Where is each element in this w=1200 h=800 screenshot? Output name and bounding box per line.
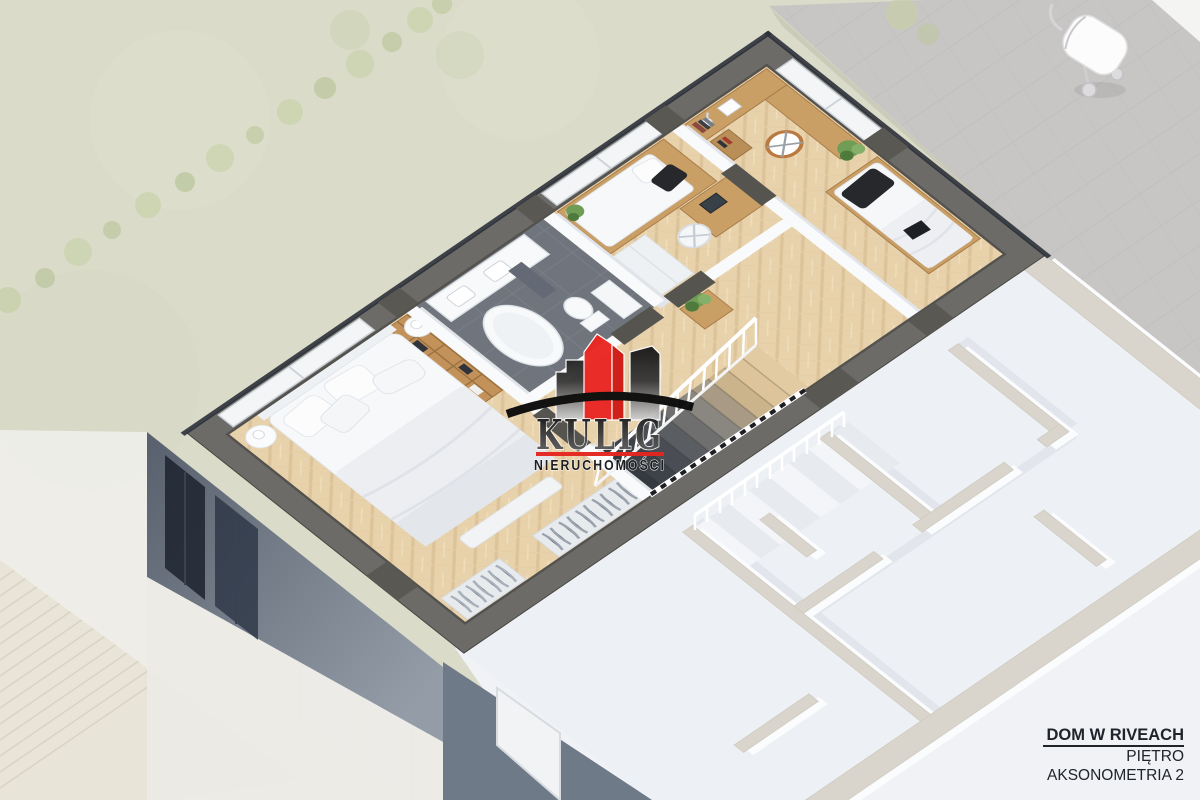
caption-floor: PIĘTRO: [1126, 748, 1184, 765]
caption-underline: [1043, 745, 1184, 747]
caption-project: DOM W RIVEACH: [1047, 726, 1185, 744]
floorplan-render: KULIG NIERUCHOMOŚCI DOM W RIVEACH PIĘTRO…: [0, 0, 1200, 800]
brand-subtitle: NIERUCHOMOŚCI: [534, 456, 666, 474]
caption-view: AKSONOMETRIA 2: [1047, 767, 1184, 784]
brand-underline: [536, 452, 664, 456]
axonometric-scene: KULIG NIERUCHOMOŚCI DOM W RIVEACH PIĘTRO…: [0, 0, 1200, 800]
brand-name: KULIG: [536, 411, 664, 459]
